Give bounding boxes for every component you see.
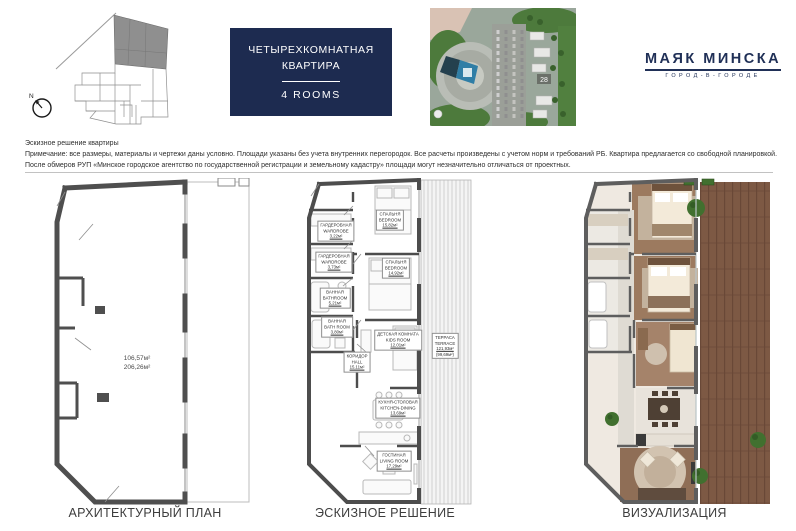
tv-icon [414,464,417,484]
caption-sketch: ЭСКИЗНОЕ РЕШЕНИЕ [295,506,475,520]
visualization-plan [572,178,777,508]
area-main: 106,57м² [124,354,151,363]
room-area: 12,01м² [377,343,419,349]
sofa-icon [638,488,686,501]
room-area: 3,73м² [318,265,349,271]
room-label-bedroom-1: СПАЛЬНЯ BEDROOM 15,82м² [376,210,404,231]
room-area: 14,92м² [385,271,407,277]
wardrobe-icon [588,248,628,260]
room-label-bedroom-2: СПАЛЬНЯ BEDROOM 14,92м² [382,258,410,279]
sofa-icon [363,480,411,494]
apartment-area-label: 106,57м² 206,26м² [124,354,151,372]
brand-tagline: ГОРОД-В-ГОРОДЕ [638,73,788,79]
room-area: 17,29м² [380,464,409,470]
room-label-kitchen-dining: КУХНЯ-СТОЛОВАЯ KITCHEN-DINING 13,69м² [375,398,420,419]
visualization-drawing [572,178,777,508]
terrace-deck [700,182,770,504]
shafts [95,306,109,402]
room-label-living-room: ГОСТИНАЯ LIVING ROOM 17,29м² [377,451,412,472]
room-label-kids-room: ДЕТСКАЯ КОМНАТА KIDS ROOM 12,01м² [374,330,422,351]
brochure-page: N ЧЕТЫРЕХКОМНАТНАЯ КВАРТИРА 4 ROOMS [0,0,796,531]
wardrobe-icon [588,214,628,226]
disclaimer: Эскизное решение квартиры Примечание: вс… [25,139,791,172]
bathtub-icon [589,320,607,348]
room-area: 5,21м² [323,301,348,307]
brand-logo: МАЯК МИНСКА ГОРОД-В-ГОРОДЕ [638,50,788,79]
site-plan: N [20,5,185,130]
room-area: 13,69м² [378,411,417,417]
room-area: 15,11м² [347,365,368,371]
disclaimer-line1: Эскизное решение квартиры [25,139,791,150]
terrace-outline [187,178,249,502]
rug [645,343,667,365]
caption-visualization: ВИЗУАЛИЗАЦИЯ [572,506,777,520]
room-label-bathroom-1: ВАННАЯ BATHROOM 5,21м² [320,288,351,309]
architectural-plan-drawing [35,178,255,508]
parking-lot [492,24,526,126]
sketch-plan: СПАЛЬНЯ BEDROOM 15,82м² ГАРДЕРОБНАЯ WARD… [295,178,475,508]
apartment-title-box: ЧЕТЫРЕХКОМНАТНАЯ КВАРТИРА 4 ROOMS [230,28,392,116]
aerial-drawing: 28 [430,8,576,126]
site-plan-drawing: N [20,5,185,130]
room-label-wardrobe-1: ГАРДЕРОБНАЯ WARDROBE 3,22м² [317,221,354,242]
room-area: 3,80м² [324,330,350,336]
room-label-terrace: ТЕРРАСА TERRACE 121,93м² (99,69м²) [432,333,459,359]
room-area: 15,82м² [379,223,401,229]
title-divider [282,81,340,82]
disclaimer-line3: После обмеров РУП «Минское городское аге… [25,161,791,172]
room-label-bathroom-2: ВАННАЯ BATH ROOM 3,80м² [321,317,353,338]
building-number: 28 [540,77,548,84]
building-number-chip: 28 [537,74,551,84]
room-label-hall: КОРИДОР HALL 15,11м² [344,352,371,373]
caption-architectural: АРХИТЕКТУРНЫЙ ПЛАН [35,506,255,520]
divider-line [25,172,773,173]
highlighted-section [114,15,168,69]
room-label-wardrobe-2: ГАРДЕРОБНАЯ WARDROBE 3,73м² [315,252,352,273]
compass-icon: N [29,93,51,117]
fountain [434,110,442,118]
disclaimer-line2: Примечание: все размеры, материалы и чер… [25,150,791,161]
architectural-plan: 106,57м² 206,26м² [35,178,255,508]
boundary-line [56,13,116,69]
building-footprint [75,64,168,124]
apartment-type-line1: ЧЕТЫРЕХКОМНАТНАЯ [248,43,374,58]
kids-bed-icon [670,324,696,372]
area-total: 206,26м² [124,363,151,372]
outer-walls [57,182,185,502]
aerial-photo: 28 [430,8,576,126]
rooms-count: 4 ROOMS [281,89,341,101]
room-area-secondary: (99,69м²) [435,352,456,358]
desk-icon [638,328,648,350]
compass-label: N [29,93,34,100]
apartment-type-line2: КВАРТИРА [282,59,340,74]
door-swings [57,192,119,502]
brand-name: МАЯК МИНСКА [645,51,781,71]
bathtub-icon [588,282,606,312]
washer-icon [335,338,345,348]
interior-stubs [57,278,83,418]
room-area: 3,22м² [320,234,351,240]
